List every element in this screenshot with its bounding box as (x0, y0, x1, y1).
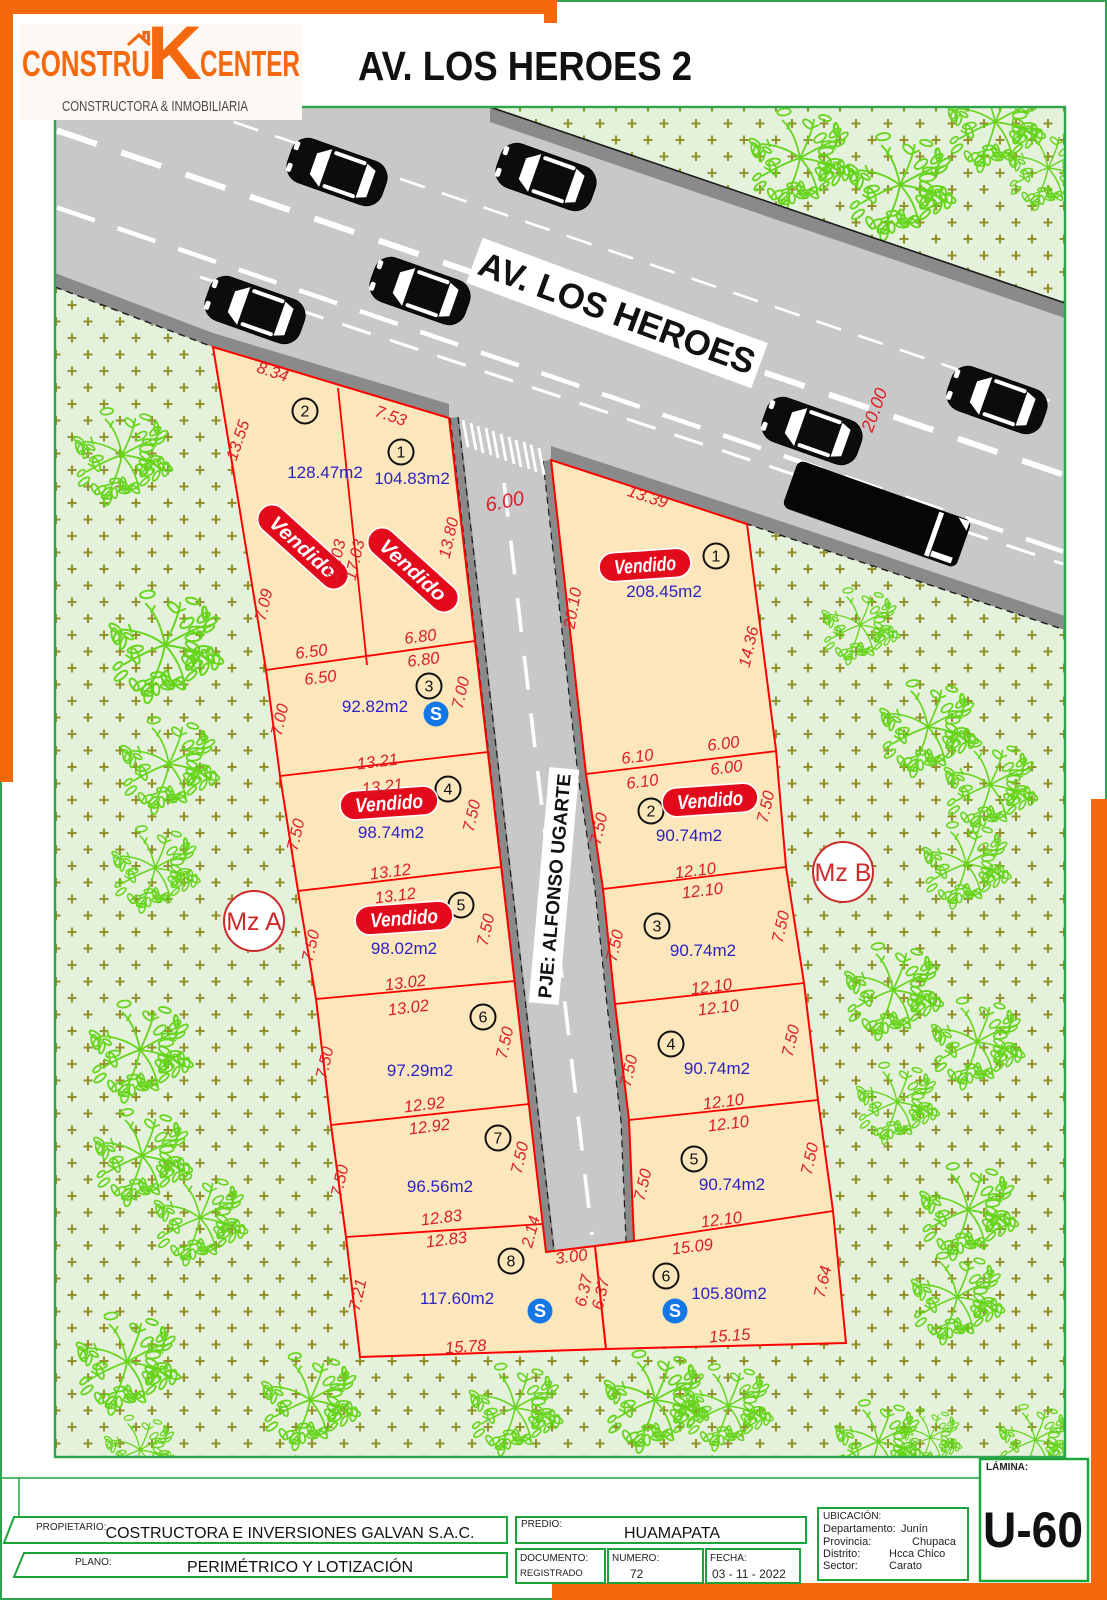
svg-text:92.82m2: 92.82m2 (342, 697, 408, 716)
svg-text:1: 1 (712, 549, 721, 566)
svg-text:03 - 11 - 2022: 03 - 11 - 2022 (712, 1567, 786, 1581)
svg-text:PROPIETARIO:: PROPIETARIO: (36, 1522, 106, 1533)
svg-text:NUMERO:: NUMERO: (612, 1553, 659, 1564)
svg-text:97.29m2: 97.29m2 (387, 1061, 453, 1080)
svg-text:PERIMÉTRICO Y LOTIZACIÓN: PERIMÉTRICO Y LOTIZACIÓN (187, 1557, 413, 1576)
svg-text:Vendido: Vendido (676, 788, 743, 815)
svg-text:3: 3 (425, 679, 434, 696)
svg-text:S: S (534, 1301, 546, 1321)
svg-text:Departamento:: Departamento: (823, 1523, 896, 1535)
svg-text:CONSTRUCTORA & INMOBILIARIA: CONSTRUCTORA & INMOBILIARIA (62, 99, 248, 115)
svg-text:Hcca Chico: Hcca Chico (889, 1548, 945, 1560)
svg-text:208.45m2: 208.45m2 (626, 582, 702, 601)
svg-text:COSTRUCTORA E INVERSIONES GALV: COSTRUCTORA E INVERSIONES GALVAN S.A.C. (106, 1525, 475, 1542)
svg-text:S: S (669, 1301, 681, 1321)
svg-text:HUAMAPATA: HUAMAPATA (624, 1525, 720, 1542)
svg-text:K: K (147, 11, 202, 96)
svg-text:Mz B: Mz B (815, 859, 872, 887)
svg-text:96.56m2: 96.56m2 (407, 1177, 473, 1196)
svg-text:15.78: 15.78 (444, 1337, 487, 1358)
svg-text:LÁMINA:: LÁMINA: (986, 1460, 1028, 1473)
svg-text:CONSTRU: CONSTRU (22, 43, 150, 84)
svg-text:15.15: 15.15 (708, 1326, 751, 1347)
svg-text:6: 6 (479, 1010, 488, 1027)
svg-text:7: 7 (494, 1131, 503, 1148)
svg-text:8: 8 (507, 1254, 516, 1271)
svg-text:Chupaca: Chupaca (912, 1536, 957, 1548)
svg-text:PLANO:: PLANO: (75, 1557, 112, 1568)
svg-text:Vendido: Vendido (613, 553, 676, 579)
svg-text:3: 3 (653, 919, 662, 936)
svg-text:98.74m2: 98.74m2 (358, 823, 424, 842)
svg-text:128.47m2: 128.47m2 (287, 463, 363, 482)
svg-text:117.60m2: 117.60m2 (420, 1289, 494, 1308)
svg-text:90.74m2: 90.74m2 (684, 1059, 750, 1078)
svg-text:5: 5 (457, 898, 466, 915)
svg-text:90.74m2: 90.74m2 (670, 941, 736, 960)
svg-text:CENTER: CENTER (200, 43, 300, 84)
svg-text:104.83m2: 104.83m2 (374, 469, 450, 488)
svg-text:AV. LOS HEROES 2: AV. LOS HEROES 2 (358, 43, 692, 89)
svg-text:U-60: U-60 (983, 1502, 1083, 1558)
svg-text:2: 2 (647, 804, 656, 821)
svg-text:REGISTRADO: REGISTRADO (520, 1568, 583, 1579)
svg-text:Mz A: Mz A (226, 908, 282, 936)
svg-text:Sector:: Sector: (823, 1560, 858, 1572)
svg-text:2: 2 (301, 404, 310, 421)
svg-text:UBICACIÓN:: UBICACIÓN: (823, 1509, 881, 1522)
svg-text:Carato: Carato (889, 1560, 922, 1572)
svg-text:DOCUMENTO:: DOCUMENTO: (520, 1553, 588, 1564)
svg-text:1: 1 (397, 445, 406, 462)
svg-text:Junín: Junín (901, 1523, 928, 1535)
svg-text:90.74m2: 90.74m2 (656, 826, 722, 845)
svg-text:Provincia:: Provincia: (823, 1536, 871, 1548)
svg-text:5: 5 (690, 1152, 699, 1169)
svg-text:FECHA:: FECHA: (710, 1553, 747, 1564)
svg-text:4: 4 (667, 1037, 676, 1054)
svg-text:4: 4 (444, 782, 453, 799)
svg-text:S: S (430, 704, 442, 724)
svg-text:Distrito:: Distrito: (823, 1548, 860, 1560)
svg-text:72: 72 (630, 1567, 644, 1581)
svg-text:PREDIO:: PREDIO: (521, 1519, 562, 1530)
svg-text:6: 6 (662, 1269, 671, 1286)
svg-text:90.74m2: 90.74m2 (699, 1175, 765, 1194)
svg-text:105.80m2: 105.80m2 (691, 1284, 767, 1303)
svg-text:98.02m2: 98.02m2 (371, 939, 437, 958)
